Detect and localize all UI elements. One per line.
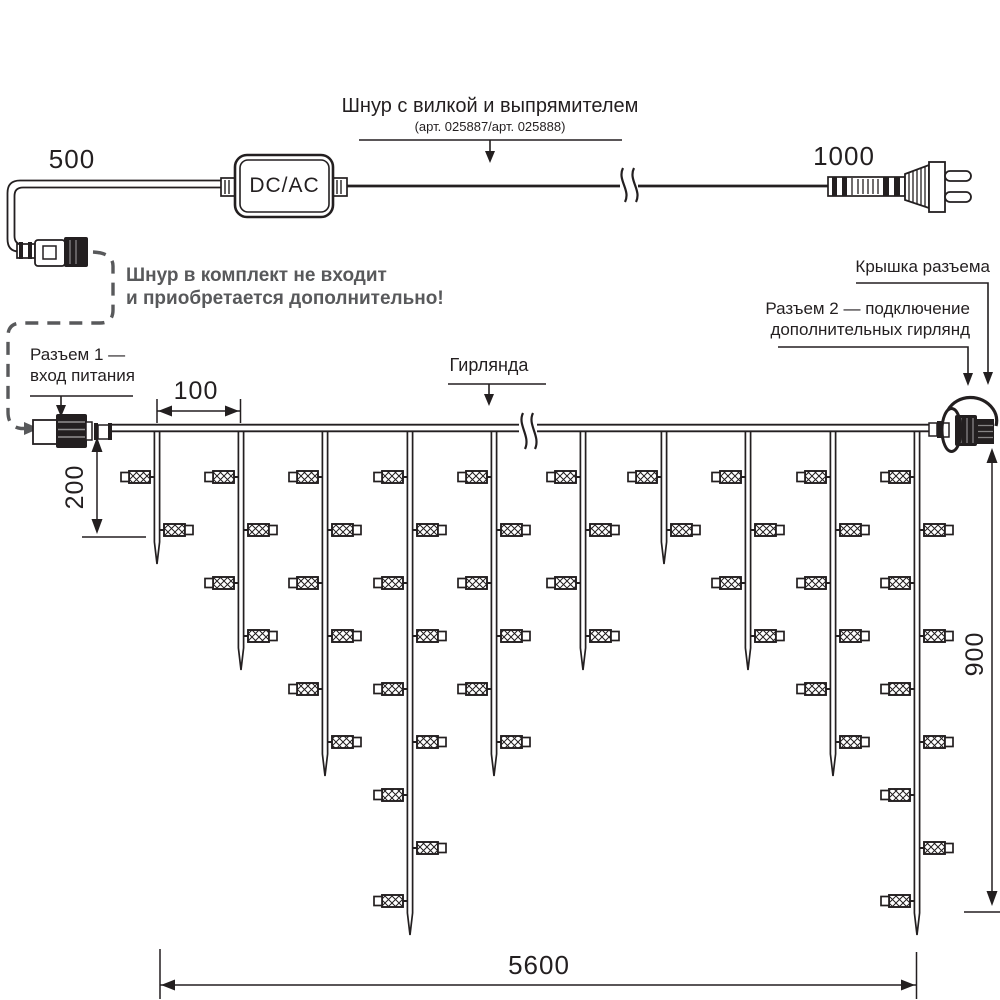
dim-900-label: 900 (962, 626, 988, 682)
icicle-strand (121, 431, 193, 564)
strand-wire (745, 431, 750, 670)
strand-wire (407, 431, 412, 935)
lamp-icon (244, 630, 277, 642)
icicle-strand (797, 431, 869, 776)
lamp-icon (160, 524, 193, 536)
cord-subtitle: (арт. 025887/арт. 025888) (340, 119, 640, 134)
lamp-icon (458, 471, 491, 483)
dimension-200 (82, 437, 146, 537)
strand-wire (580, 431, 585, 670)
dim-500-label: 500 (36, 144, 108, 175)
lamp-icon (712, 577, 745, 589)
lamp-icon (920, 524, 953, 536)
dim-5600-label: 5600 (489, 950, 589, 981)
lamp-icon (547, 471, 580, 483)
lamp-icon (413, 842, 446, 854)
connector1-pointer (30, 396, 133, 417)
connector-2 (929, 397, 997, 451)
note-line2: и приобретается дополнительно! (126, 287, 446, 310)
connector1-label: Разъем 1 — вход питания (30, 344, 200, 386)
icicle-strand (205, 431, 277, 670)
lamp-icon (712, 471, 745, 483)
icicle-strand (458, 431, 530, 776)
lamp-icon (374, 683, 407, 695)
lamp-icon (836, 736, 869, 748)
lamp-icon (289, 683, 322, 695)
lamp-icon (497, 736, 530, 748)
lamp-icon (458, 577, 491, 589)
icicle-strand (628, 431, 700, 564)
lamp-icon (920, 736, 953, 748)
cord-break-icon (621, 168, 637, 202)
connector2-label: Разъем 2 — подключение дополнительных ги… (758, 298, 970, 340)
lamp-icon (586, 630, 619, 642)
icicle-garland-diagram: Шнур с вилкой и выпрямителем (арт. 02588… (0, 0, 1000, 1000)
lamp-icon (413, 736, 446, 748)
plug-prong-top (945, 171, 971, 181)
garland-label-pointer (448, 384, 546, 406)
icicle-strand (547, 431, 619, 670)
strand-wire (238, 431, 243, 670)
lamp-icon (458, 683, 491, 695)
lamp-icon (797, 683, 830, 695)
connector-1 (33, 414, 112, 448)
strand-wire (830, 431, 835, 776)
lamp-icon (836, 630, 869, 642)
lamp-icon (328, 524, 361, 536)
icicle-strand (712, 431, 784, 670)
strand-wire (322, 431, 327, 776)
strand-wire (491, 431, 496, 776)
connector1-label-line1: Разъем 1 — (30, 344, 200, 365)
lamp-icon (881, 577, 914, 589)
strand-wire (914, 431, 919, 935)
cord-to-plug (347, 168, 830, 202)
connector2-label-line2: дополнительных гирлянд (758, 319, 970, 340)
lamp-icon (205, 471, 238, 483)
lamp-icon (289, 471, 322, 483)
lamp-icon (413, 630, 446, 642)
lamp-icon (374, 895, 407, 907)
cord-title: Шнур с вилкой и выпрямителем (340, 95, 640, 118)
lamp-icon (881, 789, 914, 801)
lamp-icon (497, 524, 530, 536)
lamp-icon (586, 524, 619, 536)
lamp-icon (797, 471, 830, 483)
garland-wire (111, 413, 930, 449)
cord-title-pointer (359, 140, 622, 163)
lamp-icon (836, 524, 869, 536)
dim-1000-label: 1000 (806, 141, 882, 172)
lamp-icon (374, 577, 407, 589)
icicle-strand (881, 431, 953, 935)
lamp-icon (881, 471, 914, 483)
dc-ac-label: DC/AC (240, 160, 329, 212)
lamp-icon (797, 577, 830, 589)
lamp-icon (497, 630, 530, 642)
lamp-icon (374, 471, 407, 483)
lamp-icon (881, 683, 914, 695)
lamp-icon (751, 524, 784, 536)
lamp-icon (881, 895, 914, 907)
icicle-strand (289, 431, 361, 776)
lamp-icon (328, 630, 361, 642)
lamp-icon (751, 630, 784, 642)
lamp-icon (413, 524, 446, 536)
lamp-icon (628, 471, 661, 483)
connector1-label-line2: вход питания (30, 365, 200, 386)
lamp-icon (667, 524, 700, 536)
lamp-icon (374, 789, 407, 801)
lamp-icon (920, 630, 953, 642)
spare-cord-connector (17, 237, 88, 267)
lamp-icon (244, 524, 277, 536)
connector2-label-line1: Разъем 2 — подключение (758, 298, 970, 319)
connector2-label-pointer (778, 347, 973, 386)
cap-label: Крышка разъема (830, 257, 990, 277)
lamp-icon (205, 577, 238, 589)
icicle-strand (374, 431, 446, 935)
wire-break-icon (521, 413, 536, 449)
garland-label: Гирлянда (434, 355, 544, 376)
lamp-icon (328, 736, 361, 748)
lamp-icon (547, 577, 580, 589)
strand-wire (661, 431, 666, 564)
note-line1: Шнур в комплект не входит (126, 264, 446, 287)
lamp-icon (289, 577, 322, 589)
lamp-icon (121, 471, 154, 483)
lamp-icon (920, 842, 953, 854)
dim-200-label: 200 (62, 459, 88, 515)
note-not-included: Шнур в комплект не входит и приобретаетс… (126, 264, 446, 310)
plug-prong-bottom (945, 192, 971, 202)
strand-wire (154, 431, 159, 564)
icicle-strands (121, 431, 953, 935)
